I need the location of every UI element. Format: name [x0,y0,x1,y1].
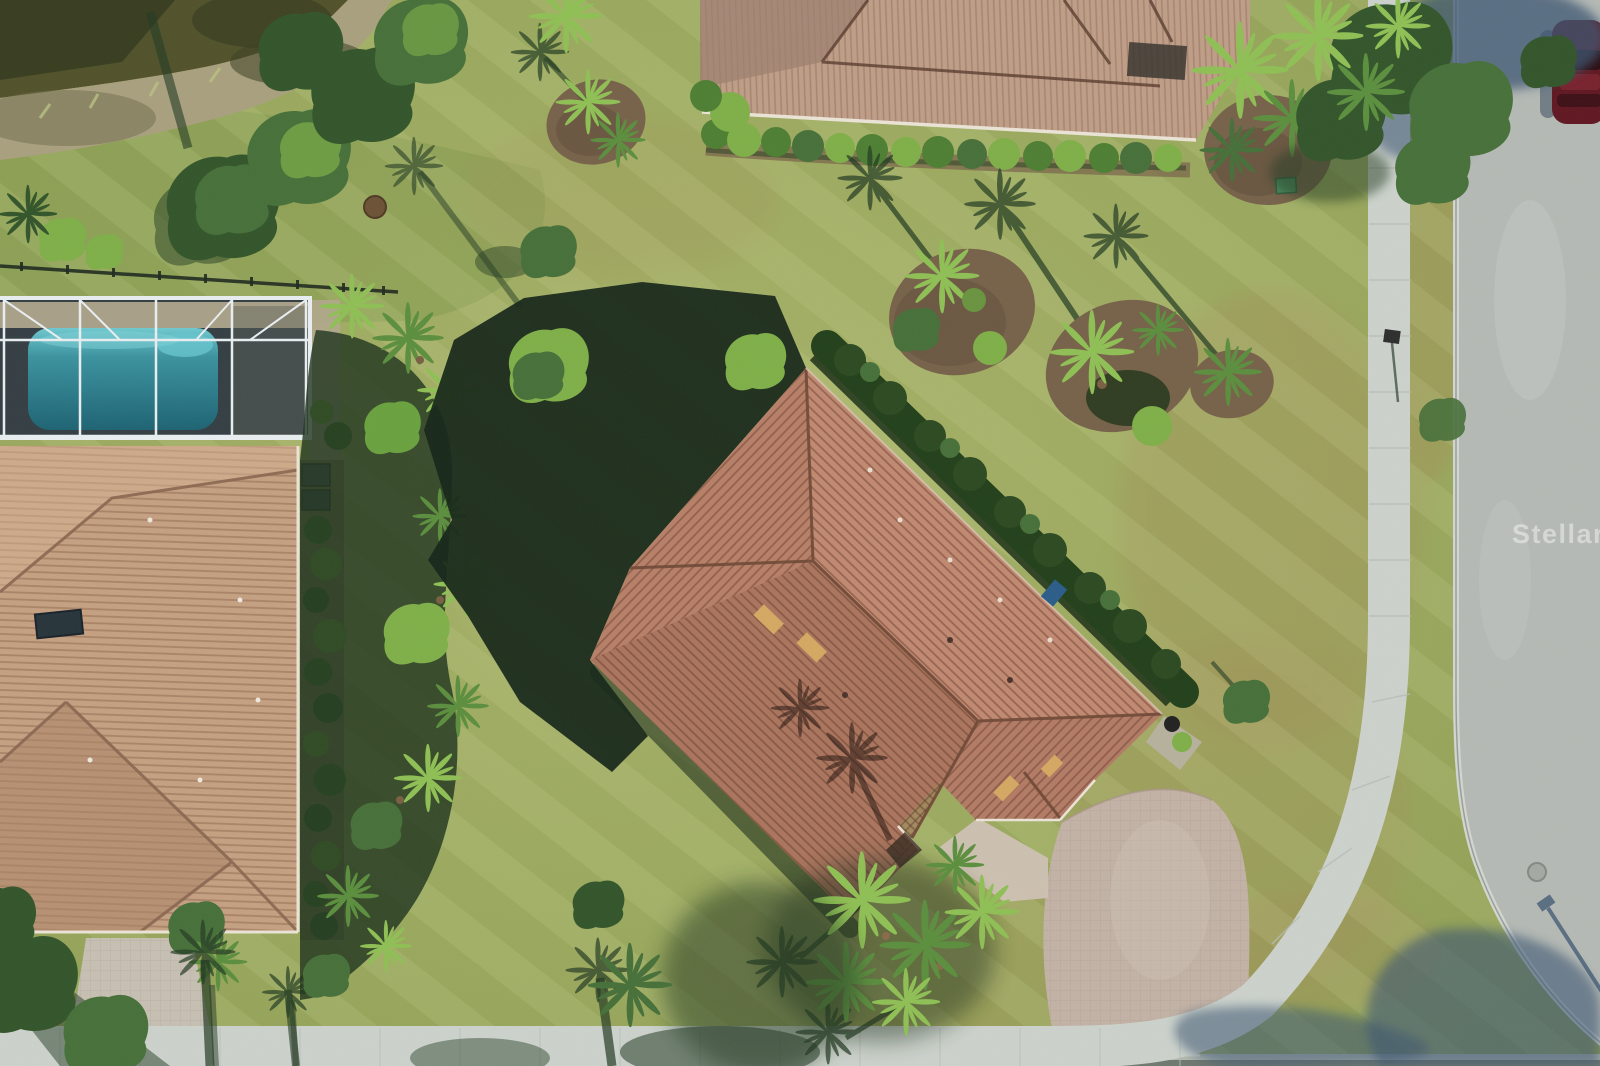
solar-panel [35,610,83,639]
watermark-text: Stellar MLS [1512,519,1600,549]
pool-enclosure [0,298,312,440]
left-house-roof [0,446,298,932]
aerial-photo: Stellar MLS [0,0,1600,1066]
round-bush [725,333,786,390]
dirt-patch [364,196,386,218]
manhole-cover [1528,863,1546,881]
